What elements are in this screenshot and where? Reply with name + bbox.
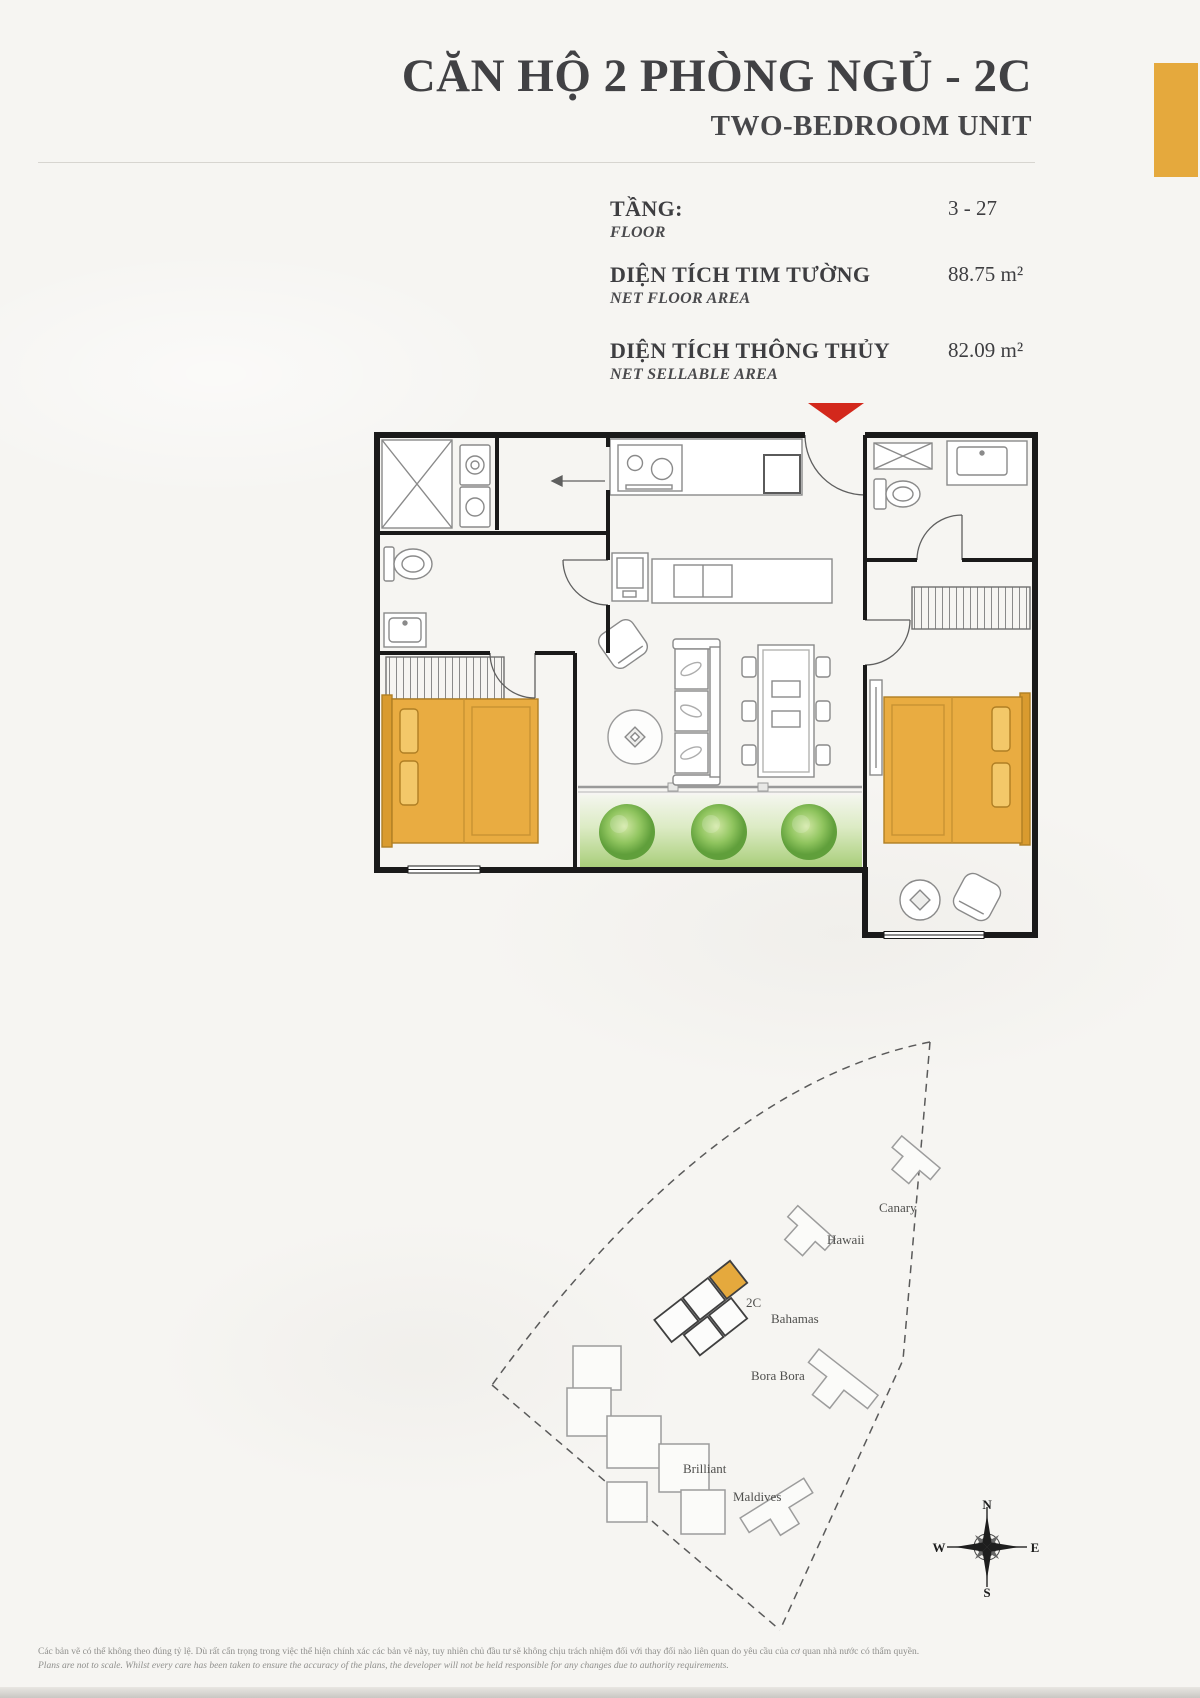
- tree-icon: [691, 804, 747, 860]
- spec-row-net-sellable-area: DIỆN TÍCH THÔNG THỦY NET SELLABLE AREA 8…: [610, 338, 1130, 384]
- tree-icon: [599, 804, 655, 860]
- compass-n: N: [982, 1497, 992, 1512]
- stove-icon: [618, 445, 682, 491]
- spec-label-en: NET SELLABLE AREA: [610, 366, 1130, 384]
- brochure-page: { "header": { "title_vi": "CĂN HỘ 2 PHÒN…: [0, 0, 1200, 1698]
- kitchen-counter: [610, 439, 802, 495]
- sofa-icon: [673, 639, 720, 785]
- label-canary: Canary: [879, 1200, 917, 1215]
- spec-row-floor: TẦNG: FLOOR 3 - 27: [610, 196, 1130, 242]
- compass-icon: N S E W: [933, 1497, 1040, 1600]
- building-hawaii: [775, 1206, 835, 1265]
- label-maldives: Maldives: [733, 1489, 781, 1504]
- entrance-marker-icon: [808, 403, 864, 423]
- site-map: Canary Hawaii 2C Bahamas Bora Bora Brill…: [455, 1030, 1095, 1645]
- window-bench: [870, 680, 882, 775]
- wardrobe: [386, 657, 504, 699]
- spec-label-vi: TẦNG:: [610, 196, 1130, 222]
- compass-e: E: [1031, 1540, 1040, 1555]
- entrance-door: [805, 435, 865, 495]
- armchair-icon: [595, 616, 651, 672]
- sink-icon: [384, 613, 426, 647]
- page-bottom-edge: [0, 1687, 1200, 1698]
- spec-label-vi: DIỆN TÍCH TIM TƯỜNG: [610, 262, 1130, 288]
- building-canary: [881, 1136, 940, 1193]
- bedroom2-door: [865, 620, 910, 665]
- page-subtitle: TWO-BEDROOM UNIT: [332, 110, 1032, 143]
- window: [408, 866, 984, 939]
- accent-gold-block: [1154, 63, 1198, 177]
- disclaimer-vi: Các bản vẽ có thể không theo đúng tỷ lệ.…: [38, 1646, 1168, 1659]
- spec-label-vi: DIỆN TÍCH THÔNG THỦY: [610, 338, 1130, 364]
- header-divider: [38, 162, 1035, 163]
- label-hawaii: Hawaii: [827, 1232, 865, 1247]
- page-title: CĂN HỘ 2 PHÒNG NGỦ - 2C: [132, 52, 1032, 101]
- kitchen-island: [612, 553, 832, 603]
- spec-value: 88.75 m²: [948, 262, 1023, 287]
- dining-table: [742, 645, 830, 777]
- building-bora-bora: [794, 1349, 878, 1427]
- washer-dryer-icon: [460, 445, 490, 527]
- balcony: [578, 783, 862, 867]
- buildings-layer: [567, 1136, 940, 1549]
- spec-value: 3 - 27: [948, 196, 997, 221]
- bed-bedroom1: [382, 695, 538, 847]
- spec-row-net-floor-area: DIỆN TÍCH TIM TƯỜNG NET FLOOR AREA 88.75…: [610, 262, 1130, 308]
- armchair-icon: [950, 870, 1004, 924]
- side-table-icon: [900, 880, 940, 920]
- bed-bedroom2: [884, 693, 1030, 845]
- floor-plan: [372, 395, 1042, 942]
- wardrobe: [912, 587, 1030, 629]
- spec-value: 82.09 m²: [948, 338, 1023, 363]
- rug-coffee-table-icon: [608, 710, 662, 764]
- toilet-icon: [384, 547, 432, 581]
- tree-icon: [781, 804, 837, 860]
- spec-label-en: NET FLOOR AREA: [610, 290, 1130, 308]
- spec-label-en: FLOOR: [610, 224, 1130, 242]
- bathroom1-door: [563, 560, 608, 605]
- label-unit-2c: 2C: [746, 1295, 761, 1310]
- toilet-icon: [874, 479, 920, 509]
- label-bahamas: Bahamas: [771, 1311, 819, 1326]
- sink-icon: [947, 441, 1027, 485]
- label-brilliant: Brilliant: [683, 1461, 727, 1476]
- label-bora-bora: Bora Bora: [751, 1368, 805, 1383]
- disclaimer-en: Plans are not to scale. Whilst every car…: [38, 1660, 1168, 1673]
- compass-s: S: [983, 1585, 990, 1600]
- storage-box-icon: [874, 443, 932, 469]
- building-brilliant: [567, 1346, 725, 1534]
- compass-w: W: [933, 1540, 946, 1555]
- storage-box-icon: [382, 440, 452, 528]
- bathroom2-door: [917, 515, 962, 560]
- building-bahamas: [654, 1261, 764, 1364]
